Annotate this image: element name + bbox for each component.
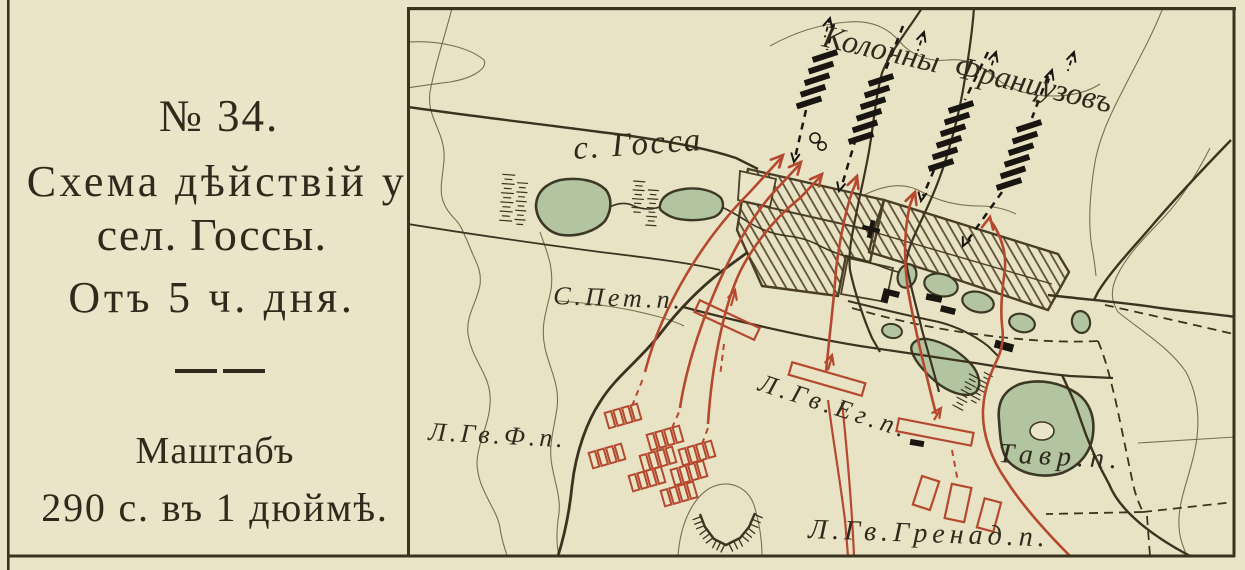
svg-text:С.Пет.п.: С.Пет.п. [553,281,685,315]
svg-text:сел. Госсы.: сел. Госсы. [97,209,328,260]
svg-text:Схема дѣйствій у: Схема дѣйствій у [27,157,407,206]
svg-text:Маштабъ: Маштабъ [136,430,295,472]
svg-text:Тавр.п.: Тавр.п. [998,438,1124,475]
svg-text:Отъ 5 ч. дня.: Отъ 5 ч. дня. [68,273,355,322]
svg-text:№ 34.: № 34. [159,91,279,141]
svg-text:290 с. въ 1 дюймѣ.: 290 с. въ 1 дюймѣ. [41,485,388,530]
